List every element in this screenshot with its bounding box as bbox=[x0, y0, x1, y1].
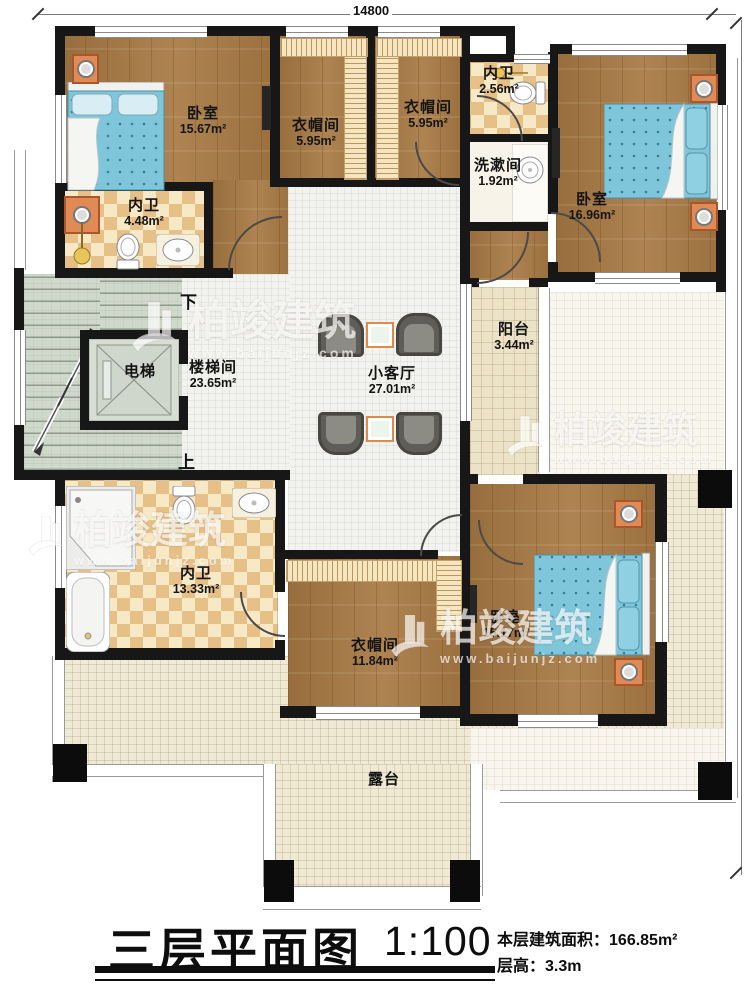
terrace-walkway-floor bbox=[470, 728, 724, 790]
floor-area-value: 166.85m² bbox=[609, 932, 678, 949]
window bbox=[514, 54, 550, 64]
room-label-lounge: 小客厅27.01m² bbox=[368, 366, 416, 396]
room-label-balcony: 阳台3.44m² bbox=[494, 322, 534, 352]
sink bbox=[156, 234, 200, 266]
dimension-line-right bbox=[741, 20, 742, 875]
closet-rack bbox=[286, 560, 438, 582]
wall bbox=[523, 474, 665, 484]
wall bbox=[278, 550, 438, 559]
tv bbox=[552, 128, 560, 178]
floor-area-label: 本层建筑面积： bbox=[497, 932, 609, 949]
shower-stall bbox=[66, 486, 136, 570]
coffee-table bbox=[366, 416, 394, 442]
balcony-railing bbox=[538, 288, 550, 472]
floor-height-value: 3.3m bbox=[545, 958, 581, 975]
bathtub bbox=[66, 572, 110, 652]
title-underline-thick bbox=[95, 966, 495, 973]
floor-height-label: 层高： bbox=[497, 958, 545, 975]
nightstand bbox=[614, 658, 644, 686]
nightstand bbox=[614, 500, 643, 528]
closet-rack bbox=[280, 38, 368, 57]
elevator-wall bbox=[179, 396, 188, 430]
closet-rack bbox=[436, 560, 462, 632]
drawing-scale: 1:100 bbox=[384, 918, 492, 965]
dimension-top-label: 14800 bbox=[350, 3, 392, 18]
room-label-bedroom-br: 卧室15.17m² bbox=[483, 610, 530, 640]
terrace-railing bbox=[263, 886, 481, 910]
armchair bbox=[396, 313, 442, 356]
window bbox=[95, 26, 207, 38]
sink bbox=[232, 488, 276, 518]
room-label-bedroom-tr: 卧室16.96m² bbox=[569, 192, 616, 222]
elevator-wall bbox=[80, 330, 188, 339]
room-label-bedroom-tl: 卧室15.67m² bbox=[180, 106, 227, 136]
terrace-upper-right-floor bbox=[548, 292, 724, 476]
coffee-table bbox=[366, 322, 394, 348]
room-label-terrace: 露台 bbox=[368, 772, 400, 789]
bed-double bbox=[66, 82, 166, 192]
window-balcony bbox=[460, 284, 472, 421]
window bbox=[14, 330, 26, 425]
pillar bbox=[698, 470, 732, 508]
wall bbox=[529, 278, 548, 287]
room-label-closet-1: 衣帽间5.95m² bbox=[292, 118, 340, 148]
armchair bbox=[318, 412, 364, 455]
closet-rack bbox=[344, 56, 367, 180]
stair-up-label: 上 bbox=[178, 448, 195, 473]
room-label-bath-bl: 内卫13.33m² bbox=[173, 566, 220, 596]
nightstand bbox=[690, 74, 718, 103]
wall bbox=[275, 476, 285, 592]
pillar bbox=[698, 762, 732, 800]
elevator-wall bbox=[80, 421, 188, 430]
room-label-bath-tr: 内卫2.56m² bbox=[479, 66, 519, 96]
pillar bbox=[450, 860, 480, 902]
wall bbox=[470, 222, 548, 231]
room-label-closet-3: 衣帽间11.84m² bbox=[351, 638, 399, 668]
wall bbox=[460, 228, 470, 284]
stair-down-label: 下 bbox=[180, 288, 197, 313]
window bbox=[655, 542, 669, 642]
tv bbox=[470, 585, 477, 623]
wall bbox=[14, 470, 290, 480]
balcony-floor bbox=[470, 287, 540, 475]
window bbox=[595, 272, 680, 284]
floor-lamp bbox=[72, 220, 92, 266]
closet-rack bbox=[376, 56, 399, 180]
nightstand bbox=[72, 54, 99, 84]
bed-double bbox=[604, 102, 718, 200]
bed-double bbox=[534, 551, 650, 657]
pillar bbox=[53, 744, 87, 782]
room-label-stairwell: 楼梯间23.65m² bbox=[189, 360, 237, 390]
room-label-closet-2: 衣帽间5.95m² bbox=[404, 100, 452, 130]
window bbox=[518, 714, 598, 728]
tv bbox=[262, 86, 271, 130]
elevator-wall bbox=[179, 330, 188, 364]
room-label-elevator: 电梯 bbox=[124, 364, 156, 381]
pillar bbox=[264, 860, 294, 902]
window bbox=[286, 26, 348, 38]
wall bbox=[55, 268, 233, 278]
wall bbox=[204, 182, 213, 278]
nightstand bbox=[690, 202, 718, 231]
title-underline-thin bbox=[95, 979, 495, 981]
wall bbox=[270, 26, 280, 178]
terrace-right-floor bbox=[665, 474, 724, 766]
toilet bbox=[114, 232, 142, 270]
window bbox=[316, 706, 420, 720]
floor-plan: 14800 17300 bbox=[0, 0, 750, 991]
floor-area-note: 本层建筑面积：166.85m² bbox=[497, 926, 678, 950]
armchair bbox=[396, 412, 442, 455]
toilet bbox=[170, 486, 198, 526]
wall bbox=[460, 421, 470, 480]
armchair bbox=[318, 314, 364, 357]
window bbox=[378, 26, 440, 38]
closet-rack bbox=[376, 38, 462, 57]
floor-height-note: 层高：3.3m bbox=[497, 952, 581, 976]
room-label-washroom: 洗漱间1.92m² bbox=[474, 158, 522, 188]
elevator-wall bbox=[80, 330, 89, 430]
room-label-bath-tl: 内卫4.48m² bbox=[124, 198, 164, 228]
terrace-railing bbox=[14, 150, 26, 270]
window bbox=[572, 44, 687, 56]
